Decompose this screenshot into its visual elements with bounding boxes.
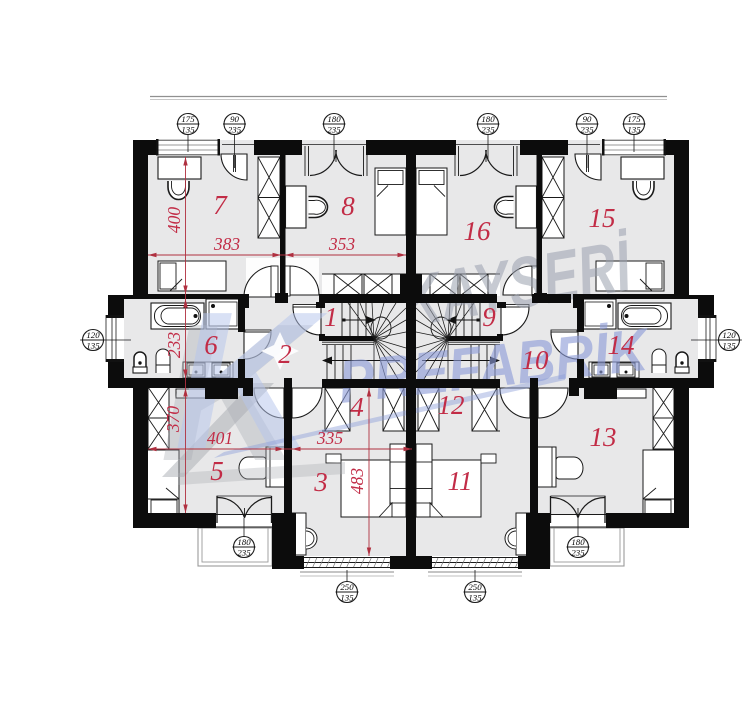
svg-text:235: 235 xyxy=(580,125,594,135)
svg-text:235: 235 xyxy=(237,548,251,558)
svg-text:235: 235 xyxy=(571,548,585,558)
svg-text:400: 400 xyxy=(164,207,184,234)
svg-text:180: 180 xyxy=(327,114,341,124)
svg-text:335: 335 xyxy=(316,428,344,448)
svg-text:90: 90 xyxy=(583,114,592,124)
svg-text:120: 120 xyxy=(86,330,100,340)
svg-text:4: 4 xyxy=(350,392,364,422)
svg-text:175: 175 xyxy=(181,114,195,124)
svg-text:180: 180 xyxy=(481,114,495,124)
svg-text:2: 2 xyxy=(278,339,292,369)
svg-text:16: 16 xyxy=(464,216,492,246)
svg-text:13: 13 xyxy=(590,422,617,452)
svg-text:233: 233 xyxy=(164,332,184,359)
svg-text:12: 12 xyxy=(438,390,465,420)
svg-text:175: 175 xyxy=(627,114,641,124)
svg-text:135: 135 xyxy=(86,341,100,351)
svg-text:90: 90 xyxy=(230,114,239,124)
svg-text:9: 9 xyxy=(482,302,496,332)
svg-text:7: 7 xyxy=(213,190,228,220)
svg-text:3: 3 xyxy=(313,467,328,497)
svg-text:180: 180 xyxy=(237,537,251,547)
svg-text:401: 401 xyxy=(207,428,233,448)
svg-text:135: 135 xyxy=(722,341,736,351)
svg-text:353: 353 xyxy=(328,234,356,254)
svg-text:235: 235 xyxy=(228,125,242,135)
svg-text:1: 1 xyxy=(324,302,338,332)
svg-text:250: 250 xyxy=(468,582,482,592)
svg-text:5: 5 xyxy=(210,456,224,486)
svg-text:11: 11 xyxy=(448,466,473,496)
svg-text:15: 15 xyxy=(589,203,616,233)
svg-text:6: 6 xyxy=(204,330,218,360)
svg-text:135: 135 xyxy=(181,125,195,135)
svg-text:370: 370 xyxy=(163,406,183,434)
svg-text:120: 120 xyxy=(722,330,736,340)
svg-text:383: 383 xyxy=(213,234,241,254)
svg-text:235: 235 xyxy=(327,125,341,135)
svg-text:180: 180 xyxy=(571,537,585,547)
svg-text:10: 10 xyxy=(522,345,550,375)
svg-text:250: 250 xyxy=(340,582,354,592)
svg-text:8: 8 xyxy=(341,191,355,221)
svg-text:483: 483 xyxy=(347,468,367,495)
svg-text:135: 135 xyxy=(340,593,354,603)
svg-text:14: 14 xyxy=(608,330,635,360)
svg-text:135: 135 xyxy=(468,593,482,603)
svg-text:135: 135 xyxy=(627,125,641,135)
svg-text:235: 235 xyxy=(481,125,495,135)
